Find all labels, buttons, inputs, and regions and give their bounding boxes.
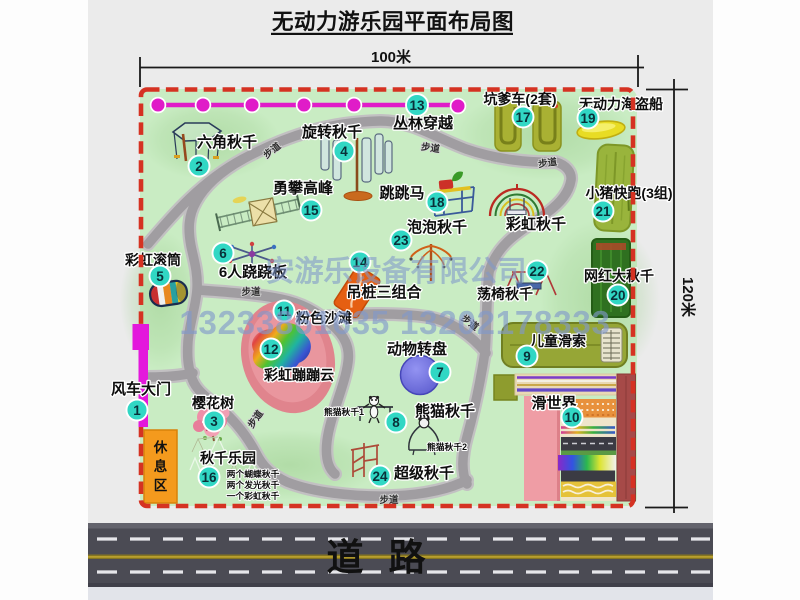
svg-text:跳跳马: 跳跳马 [379,184,424,202]
svg-text:120米: 120米 [679,277,697,318]
svg-text:勇攀高峰: 勇攀高峰 [273,179,334,197]
svg-text:六角秋千: 六角秋千 [197,133,257,151]
svg-text:4: 4 [340,144,348,159]
svg-text:熊猫秋千: 熊猫秋千 [415,402,475,420]
svg-text:19: 19 [580,111,595,126]
svg-text:熊猫秋千2: 熊猫秋千2 [427,441,467,452]
svg-text:24: 24 [372,469,388,484]
svg-text:休: 休 [153,439,168,455]
svg-text:动物转盘: 动物转盘 [387,340,447,358]
svg-text:一个彩虹秋千: 一个彩虹秋千 [227,490,280,501]
svg-text:9: 9 [523,349,531,364]
svg-text:22: 22 [529,264,544,279]
svg-text:荡椅秋千: 荡椅秋千 [477,286,533,302]
svg-text:21: 21 [595,204,611,219]
svg-text:无动力游乐园平面布局图: 无动力游乐园平面布局图 [272,9,514,34]
svg-text:彩虹滚筒: 彩虹滚筒 [124,252,181,268]
svg-text:16: 16 [201,470,217,485]
svg-text:18: 18 [429,195,445,210]
svg-text:20: 20 [610,288,625,303]
svg-text:道: 道 [327,537,364,578]
svg-text:息: 息 [154,458,168,474]
svg-text:坑爹车(2套): 坑爹车(2套) [483,91,556,107]
svg-text:8: 8 [392,415,400,430]
svg-text:23: 23 [393,233,409,248]
svg-text:秋千乐园: 秋千乐园 [200,450,256,466]
svg-text:3: 3 [210,414,218,429]
svg-text:6: 6 [219,246,227,261]
svg-text:7: 7 [436,365,444,380]
svg-text:网红大秋千: 网红大秋千 [584,268,654,284]
svg-text:泡泡秋千: 泡泡秋千 [407,218,467,236]
svg-text:小猪快跑(3组): 小猪快跑(3组) [585,185,672,201]
svg-text:100米: 100米 [371,48,412,66]
svg-text:步道: 步道 [241,286,261,298]
svg-text:风车大门: 风车大门 [111,380,171,398]
svg-text:15: 15 [303,203,319,218]
svg-text:路: 路 [389,537,427,578]
svg-text:樱花树: 樱花树 [192,395,234,411]
svg-text:丛林穿越: 丛林穿越 [393,114,454,132]
svg-text:彩虹蹦蹦云: 彩虹蹦蹦云 [263,367,334,383]
svg-text:熊猫秋千1: 熊猫秋千1 [324,406,364,417]
svg-text:5: 5 [156,269,164,284]
svg-text:安游乐设备有限公司: 安游乐设备有限公司 [265,255,526,288]
svg-text:17: 17 [515,110,530,125]
svg-text:彩虹秋千: 彩虹秋千 [505,215,566,233]
svg-text:10: 10 [564,410,579,425]
svg-text:12: 12 [263,342,278,357]
svg-text:旋转秋千: 旋转秋千 [301,123,362,141]
svg-text:2: 2 [195,159,203,174]
svg-text:13233861635 13202178333: 13233861635 13202178333 [179,304,610,341]
svg-text:区: 区 [154,478,168,493]
svg-text:13: 13 [409,98,425,113]
svg-text:两个发光秋千: 两个发光秋千 [227,479,280,490]
svg-text:两个蝴蝶秋千: 两个蝴蝶秋千 [227,468,280,479]
svg-text:1: 1 [133,403,141,418]
svg-text:超级秋千: 超级秋千 [393,464,454,482]
